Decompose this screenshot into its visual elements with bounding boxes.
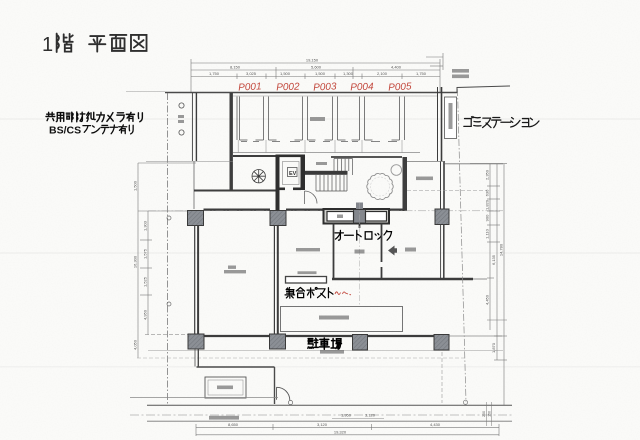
svg-text:4,950: 4,950	[143, 309, 148, 320]
svg-text:3,120: 3,120	[317, 422, 328, 427]
svg-text:4,430: 4,430	[430, 422, 441, 427]
svg-text:1,950: 1,950	[341, 413, 352, 418]
svg-text:1,750: 1,750	[209, 71, 220, 76]
svg-text:1,500: 1,500	[280, 71, 291, 76]
svg-text:19,150: 19,150	[306, 58, 319, 63]
svg-text:6,135: 6,135	[491, 254, 496, 265]
svg-text:1,525: 1,525	[143, 276, 148, 287]
svg-text:1,820: 1,820	[485, 199, 490, 210]
svg-text:2,350: 2,350	[485, 169, 490, 180]
svg-text:900: 900	[485, 214, 490, 221]
svg-text:250: 250	[482, 411, 486, 417]
svg-text:14,780: 14,780	[499, 243, 504, 256]
svg-text:2,100: 2,100	[377, 71, 388, 76]
svg-text:1,575: 1,575	[143, 248, 148, 259]
svg-text:BS/CS: BS/CS	[49, 125, 81, 137]
svg-text:1,500: 1,500	[133, 180, 138, 191]
svg-text:150: 150	[488, 411, 492, 417]
svg-text:1,870: 1,870	[491, 342, 496, 353]
svg-text:1,110: 1,110	[485, 228, 490, 238]
svg-text:16,300: 16,300	[133, 255, 138, 268]
svg-text:1,750: 1,750	[416, 71, 427, 76]
svg-text:P002: P002	[276, 82, 300, 94]
svg-text:8,650: 8,650	[228, 422, 239, 427]
svg-text:5,600: 5,600	[311, 65, 322, 70]
svg-text:4,400: 4,400	[391, 65, 402, 70]
svg-text:4,050: 4,050	[133, 339, 138, 350]
svg-text:EV: EV	[289, 171, 297, 177]
svg-text:4,450: 4,450	[485, 294, 490, 305]
svg-text:1,500: 1,500	[315, 71, 326, 76]
svg-text:1: 1	[42, 34, 53, 56]
svg-text:1,303: 1,303	[143, 220, 148, 231]
svg-text:630: 630	[485, 189, 490, 196]
svg-text:3,025: 3,025	[246, 71, 257, 76]
svg-text:1,300: 1,300	[343, 71, 354, 76]
svg-text:8,150: 8,150	[230, 65, 241, 70]
svg-text:P004: P004	[350, 82, 374, 94]
svg-text:19,320: 19,320	[334, 430, 347, 435]
svg-text:3,120: 3,120	[365, 413, 376, 418]
